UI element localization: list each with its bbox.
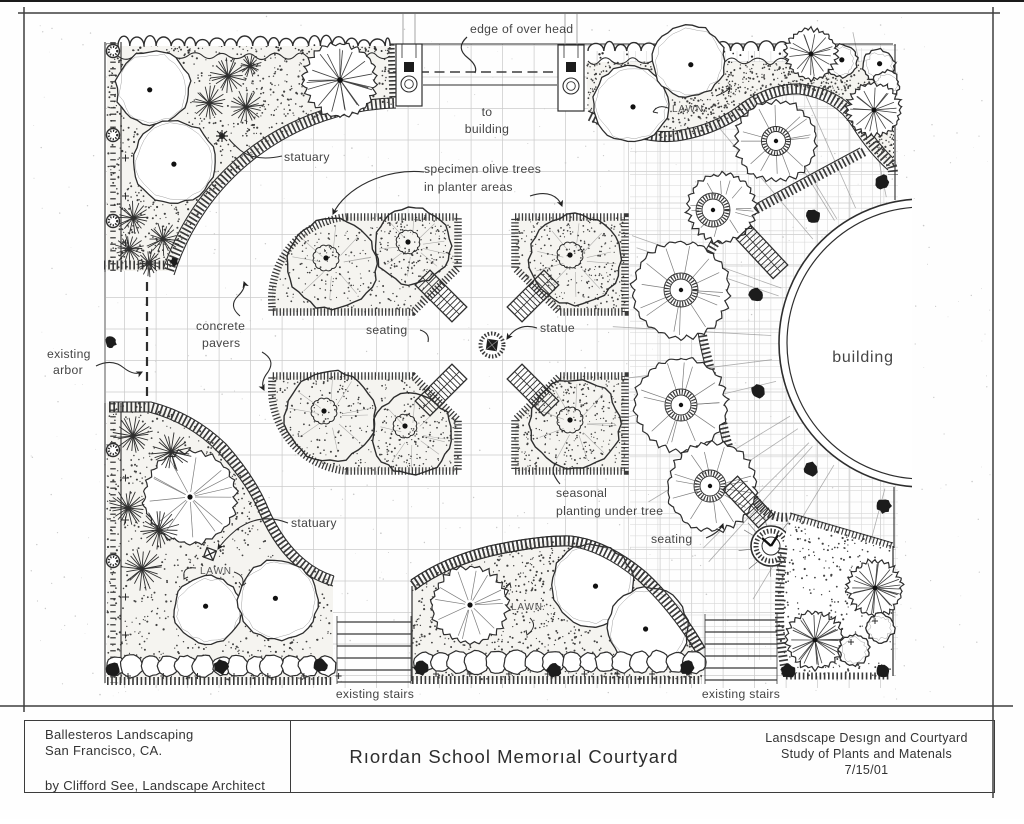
svg-text:building: building: [832, 349, 894, 366]
svg-text:in planter areas: in planter areas: [424, 180, 513, 194]
svg-text:arbor: arbor: [53, 363, 83, 377]
svg-text:statue: statue: [540, 321, 575, 335]
svg-text:seating: seating: [651, 532, 692, 546]
svg-text:building: building: [465, 122, 509, 136]
svg-text:concrete: concrete: [196, 319, 245, 333]
svg-text:existing stairs: existing stairs: [336, 687, 414, 701]
svg-text:specimen olive trees: specimen olive trees: [424, 162, 541, 176]
svg-text:statuary: statuary: [284, 150, 330, 164]
svg-text:to: to: [482, 105, 493, 119]
svg-text:LAWN: LAWN: [200, 566, 232, 577]
svg-text:planting under tree: planting under tree: [556, 504, 663, 518]
svg-text:seasonal: seasonal: [556, 486, 607, 500]
svg-text:existing: existing: [47, 347, 91, 361]
svg-text:LAWN: LAWN: [672, 104, 704, 115]
svg-text:pavers: pavers: [202, 336, 240, 350]
svg-text:statuary: statuary: [291, 516, 337, 530]
svg-text:seating: seating: [366, 323, 407, 337]
svg-text:edge of over head: edge of over head: [470, 22, 573, 36]
